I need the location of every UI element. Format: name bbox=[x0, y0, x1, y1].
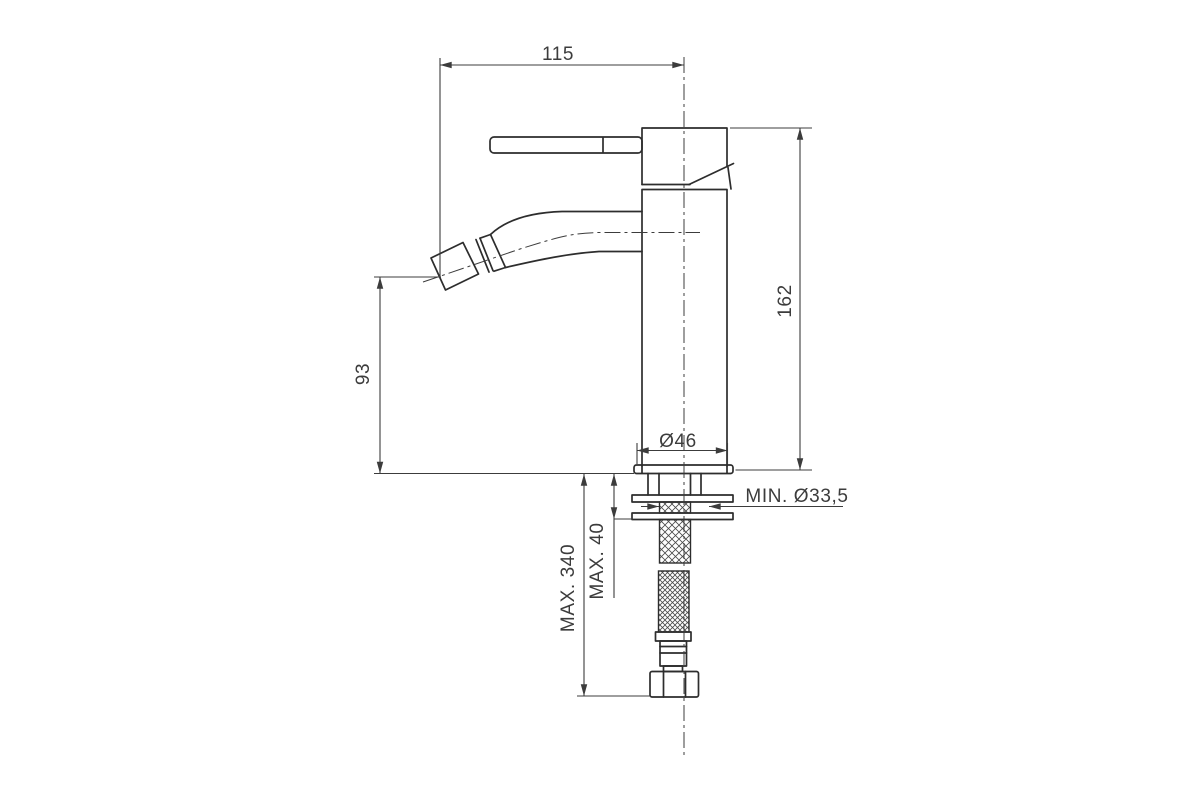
mounting-washer-lower bbox=[632, 513, 733, 520]
drawing-canvas: 115 162 93 Ø46 MIN. Ø33,5 MAX. 340 MAX. … bbox=[0, 0, 1200, 800]
dimension-spout-height: 93 bbox=[353, 277, 634, 474]
faucet-outline bbox=[431, 128, 734, 697]
dim-min-hole-label: MIN. Ø33,5 bbox=[745, 486, 848, 507]
dim-115-label: 115 bbox=[542, 44, 574, 65]
hose-ferrule-collar bbox=[656, 632, 692, 641]
threaded-shank-lower bbox=[660, 520, 691, 564]
dim-max340-label: MAX. 340 bbox=[558, 544, 579, 632]
mounting-washer-upper bbox=[632, 495, 733, 502]
mounting-stem bbox=[632, 474, 733, 564]
lever-handle bbox=[490, 137, 642, 153]
faucet-technical-drawing: 115 162 93 Ø46 MIN. Ø33,5 MAX. 340 MAX. … bbox=[0, 0, 1200, 800]
spout-end-band bbox=[491, 235, 506, 268]
threaded-shank-upper bbox=[660, 502, 691, 513]
nut-facets bbox=[664, 672, 686, 698]
handle-bar bbox=[490, 137, 642, 153]
spout-axis-centerline bbox=[423, 233, 700, 283]
head-chamfer bbox=[689, 164, 734, 185]
hose-end-nut bbox=[650, 672, 699, 698]
spout bbox=[431, 212, 642, 291]
dim-162-label: 162 bbox=[775, 284, 796, 318]
dim-max40-label: MAX. 40 bbox=[587, 522, 608, 599]
centerlines bbox=[423, 57, 700, 757]
dimension-max-deck: MAX. 40 bbox=[587, 474, 633, 600]
dimension-body-diameter: Ø46 bbox=[637, 431, 728, 464]
mixer-head bbox=[642, 128, 734, 189]
dimension-overall-height: 162 bbox=[730, 128, 812, 470]
dim-d46-label: Ø46 bbox=[659, 431, 697, 452]
dim-93-label: 93 bbox=[353, 363, 374, 385]
supply-hose bbox=[650, 571, 699, 697]
aerator-tip bbox=[431, 243, 479, 291]
